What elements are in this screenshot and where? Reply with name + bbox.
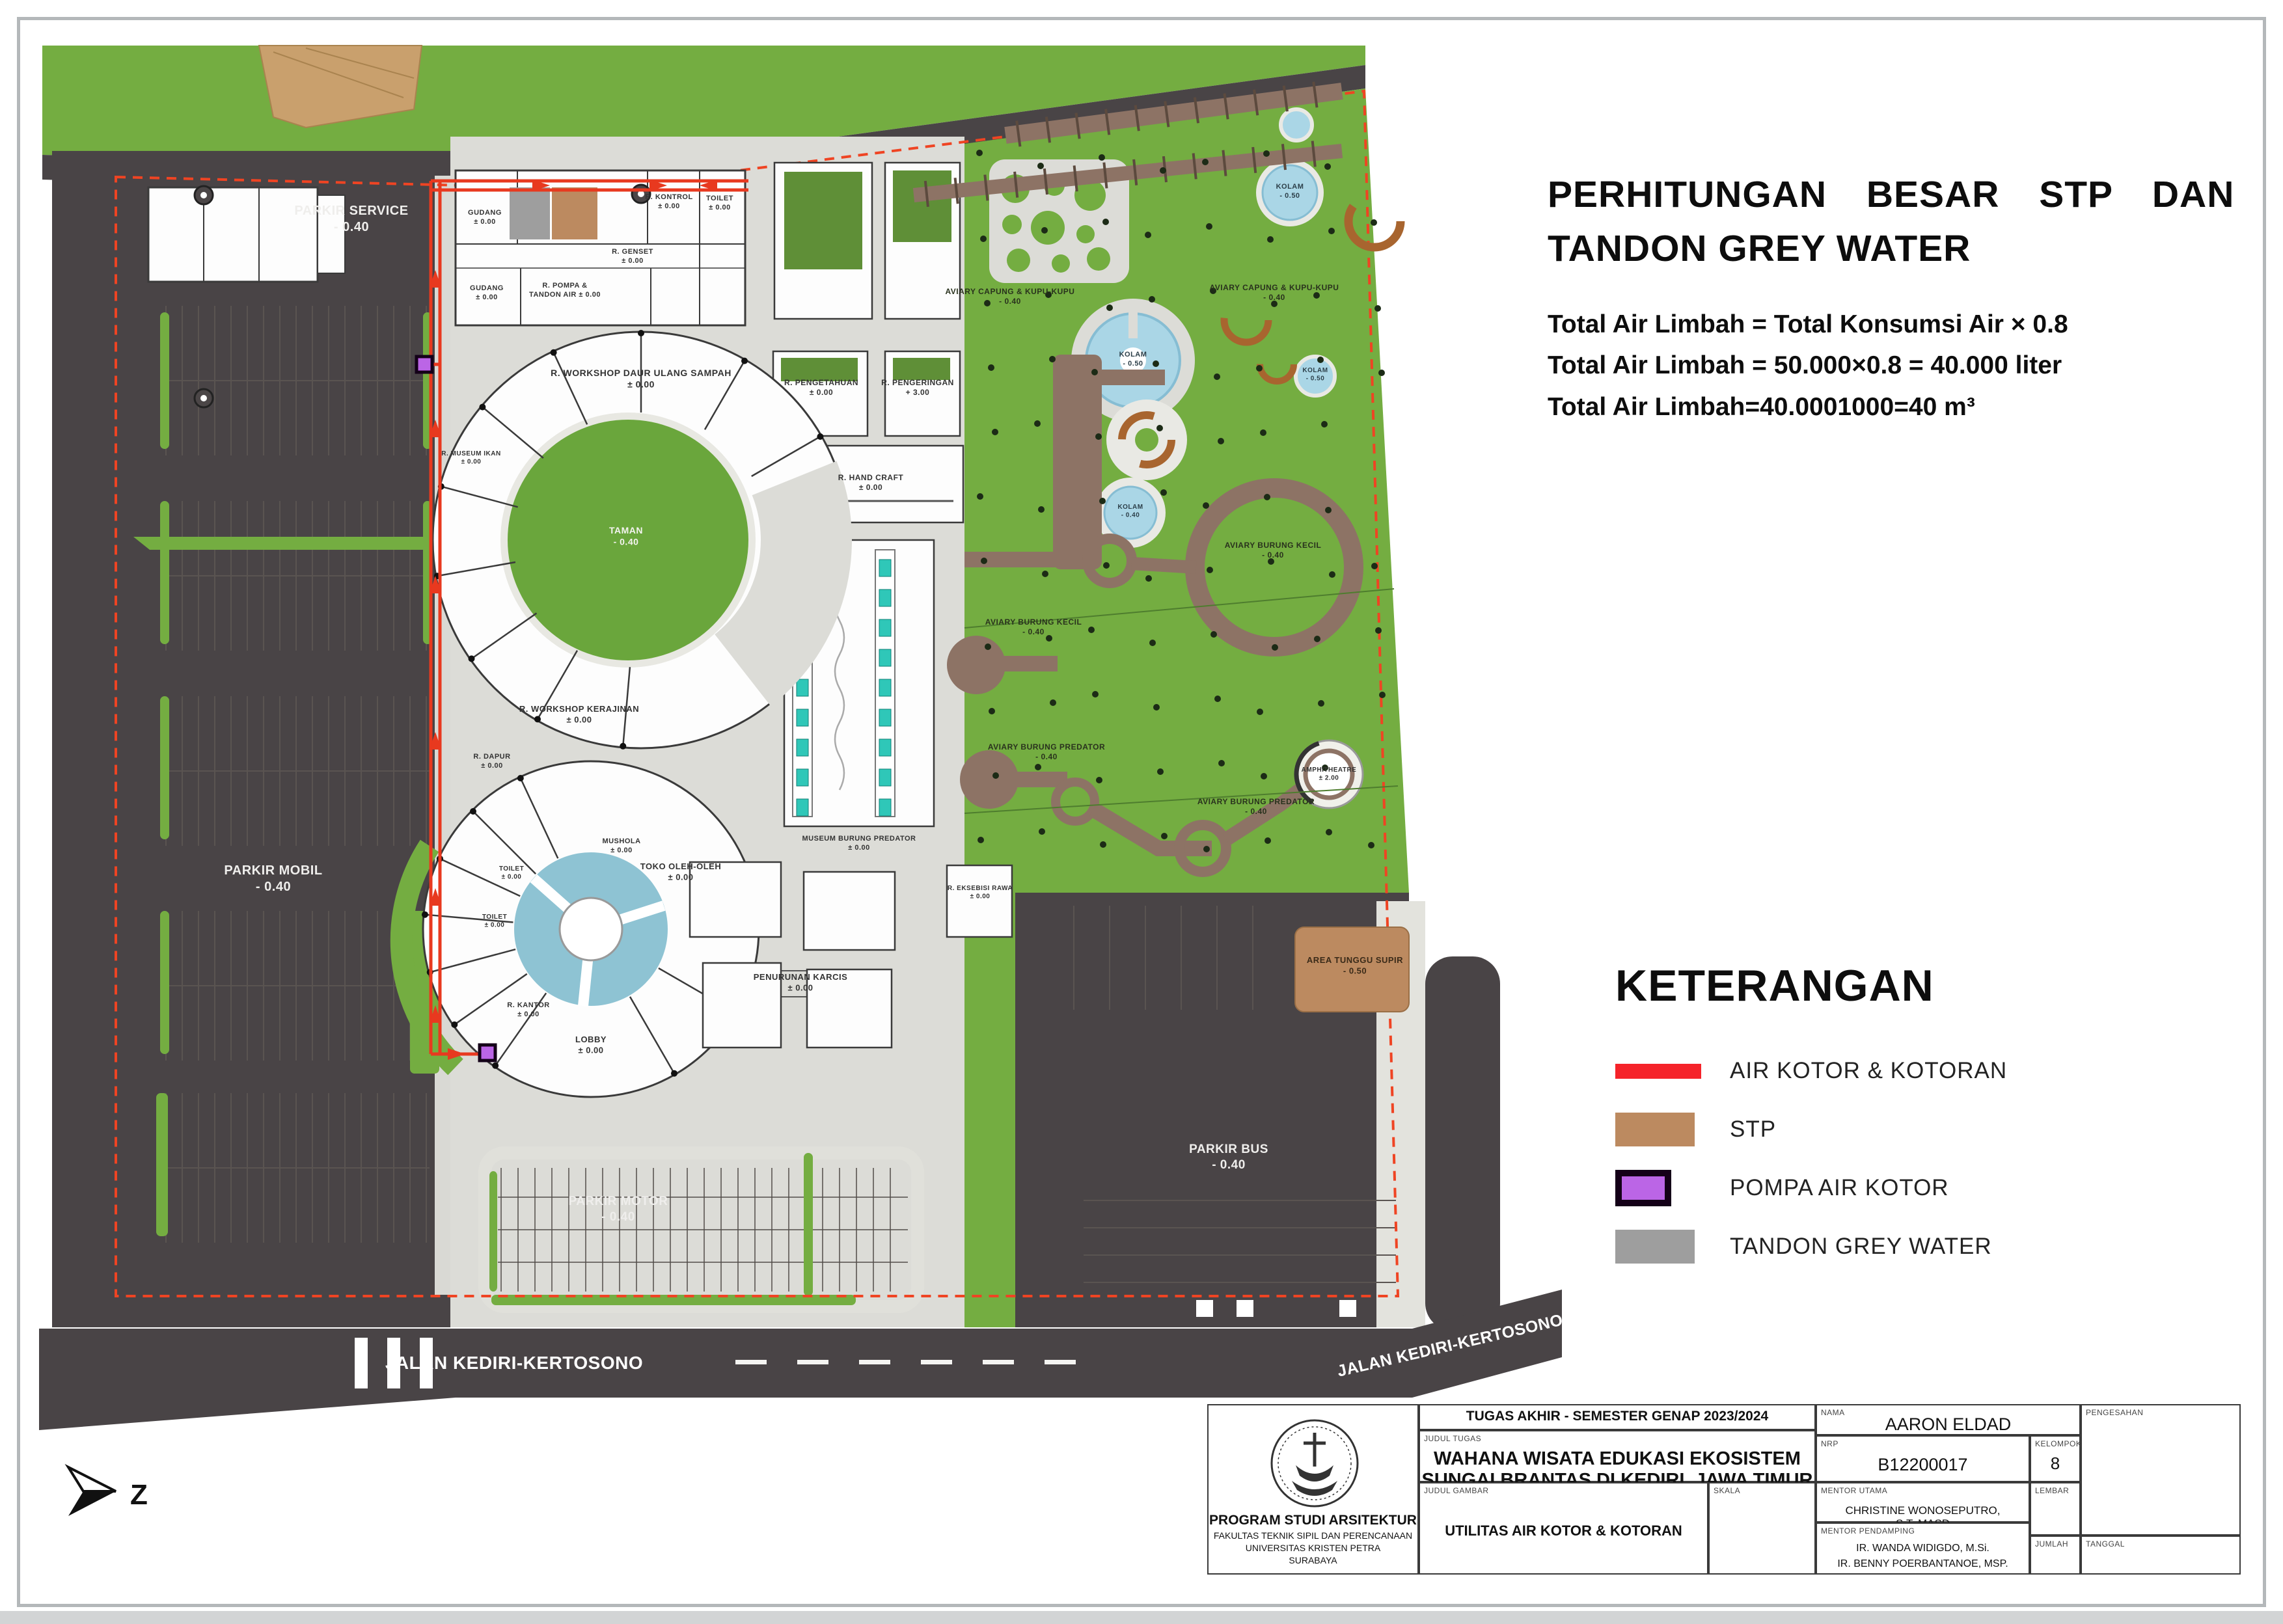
skala-cell: SKALA	[1708, 1482, 1816, 1575]
tandon-grey-water-room	[510, 187, 550, 239]
parking-gravel-edge	[435, 176, 450, 1295]
plan-label: TOILET± 0.00	[499, 865, 524, 881]
calc-line: Total Air Limbah = 50.000×0.8 = 40.000 l…	[1548, 345, 2250, 386]
drawing-title: UTILITAS AIR KOTOR & KOTORAN	[1420, 1522, 1707, 1539]
stp-swatch	[1615, 1113, 1695, 1146]
nrp-cell: NRP B12200017	[1816, 1435, 2030, 1482]
legend-item-label: TANDON GREY WATER	[1730, 1234, 1992, 1260]
plan-label: KOLAM- 0.50	[1302, 367, 1328, 383]
plan-label: KOLAM- 0.50	[1276, 183, 1304, 200]
mentor-utama-cell: MENTOR UTAMA CHRISTINE WONOSEPUTRO, S.T.…	[1816, 1482, 2030, 1522]
pengesahan-label: PENGESAHAN	[2086, 1408, 2143, 1417]
north-east-buildings	[773, 163, 960, 436]
legend-item-label: AIR KOTOR & KOTORAN	[1730, 1058, 2007, 1084]
legend-item-tandon: TANDON GREY WATER	[1615, 1228, 2253, 1265]
tanggal-label: TANGGAL	[2086, 1539, 2125, 1549]
skala-label: SKALA	[1714, 1486, 1740, 1495]
service-parking-building	[148, 187, 345, 282]
legend: KETERANGAN AIR KOTOR & KOTORAN STP POMPA…	[1615, 960, 2253, 1287]
mentor-pendamping-name: IR. WANDA WIDIGDO, M.Si.	[1817, 1541, 2029, 1556]
mentor-pendamping-name: IR. BENNY POERBANTANOE, MSP.	[1817, 1556, 2029, 1572]
parking-mobil-area	[52, 151, 450, 1327]
kelompok-cell: KELOMPOK 8	[2030, 1435, 2081, 1482]
legend-item-air-kotor: AIR KOTOR & KOTORAN	[1615, 1053, 2253, 1089]
judul-gambar-label: JUDUL GAMBAR	[1424, 1486, 1489, 1495]
legend-item-label: STP	[1730, 1116, 1776, 1143]
stp-room	[552, 187, 597, 239]
judul-gambar-cell: JUDUL GAMBAR UTILITAS AIR KOTOR & KOTORA…	[1419, 1482, 1708, 1575]
plan-label: KOLAM- 0.40	[1117, 504, 1143, 519]
institution-line: FAKULTAS TEKNIK SIPIL DAN PERENCANAAN	[1209, 1530, 1417, 1542]
nama-cell: NAMA AARON ELDAD	[1816, 1404, 2081, 1435]
lembar-cell: LEMBAR	[2030, 1482, 2081, 1536]
bottom-road-left-widen	[39, 1398, 456, 1430]
jumlah-cell: JUMLAH	[2030, 1536, 2081, 1575]
tandon-swatch	[1615, 1230, 1695, 1264]
north-arrow: Z	[68, 1467, 148, 1516]
red-line-swatch	[1615, 1064, 1701, 1079]
header-cell: TUGAS AKHIR - SEMESTER GENAP 2023/2024	[1419, 1404, 1816, 1430]
judul-tugas-label: JUDUL TUGAS	[1424, 1434, 1481, 1443]
pengesahan-cell: PENGESAHAN	[2081, 1404, 2241, 1536]
institution-line: SURABAYA	[1209, 1554, 1417, 1567]
title-block: PROGRAM STUDI ARSITEKTUR FAKULTAS TEKNIK…	[1207, 1404, 2241, 1575]
mentor-utama-label: MENTOR UTAMA	[1821, 1486, 1887, 1495]
institution-cell: PROGRAM STUDI ARSITEKTUR FAKULTAS TEKNIK…	[1207, 1404, 1419, 1575]
legend-item-stp: STP	[1615, 1111, 2253, 1148]
mentor-pendamping-label: MENTOR PENDAMPING	[1821, 1526, 1915, 1536]
utility-building	[456, 170, 745, 325]
institution-line: UNIVERSITAS KRISTEN PETRA	[1209, 1542, 1417, 1554]
calc-title-line2: TANDON GREY WATER	[1548, 222, 2250, 276]
student-name: AARON ELDAD	[1817, 1414, 2079, 1435]
judul-tugas-cell: JUDUL TUGAS WAHANA WISATA EDUKASI EKOSIS…	[1419, 1430, 1816, 1482]
plan-label: TAMAN- 0.40	[609, 525, 643, 547]
lembar-label: LEMBAR	[2035, 1486, 2069, 1495]
student-id: B12200017	[1817, 1455, 2029, 1475]
plan-label: LOBBY± 0.00	[575, 1035, 607, 1055]
assignment-header: TUGAS AKHIR - SEMESTER GENAP 2023/2024	[1420, 1409, 1814, 1424]
university-logo	[1266, 1414, 1363, 1512]
institution-line: PROGRAM STUDI ARSITEKTUR	[1209, 1511, 1417, 1530]
plan-label: TOILET± 0.00	[482, 913, 507, 929]
group-number: 8	[2031, 1454, 2079, 1474]
legend-item-label: POMPA AIR KOTOR	[1730, 1175, 1949, 1201]
plan-label: JALAN KEDIRI-KERTOSONO	[385, 1353, 643, 1373]
pompa-swatch	[1615, 1170, 1671, 1206]
legend-title: KETERANGAN	[1615, 960, 2253, 1011]
legend-item-pompa: POMPA AIR KOTOR	[1615, 1170, 2253, 1206]
nrp-label: NRP	[1821, 1439, 1839, 1448]
north-label: Z	[130, 1479, 148, 1511]
project-title-line: WAHANA WISATA EDUKASI EKOSISTEM	[1420, 1448, 1814, 1470]
calc-line: Total Air Limbah=40.0001000=40 m³	[1548, 386, 2250, 427]
kelompok-label: KELOMPOK	[2035, 1439, 2081, 1448]
stp-calculation-block: PERHITUNGAN BESAR STP DAN TANDON GREY WA…	[1548, 168, 2250, 427]
calc-title-line1: PERHITUNGAN BESAR STP DAN	[1548, 168, 2250, 222]
ring-workshop-building	[433, 330, 852, 750]
tanggal-cell: TANGGAL	[2081, 1536, 2241, 1575]
plan-label: TOILET± 0.00	[706, 195, 733, 211]
calc-line: Total Air Limbah = Total Konsumsi Air × …	[1548, 304, 2250, 345]
green-strip-mid	[964, 893, 1015, 1327]
mentor-pendamping-cell: MENTOR PENDAMPING IR. WANDA WIDIGDO, M.S…	[1816, 1522, 2030, 1575]
road-finger-right	[1425, 956, 1500, 1331]
plan-label: KOLAM- 0.50	[1119, 351, 1147, 368]
jumlah-label: JUMLAH	[2035, 1539, 2068, 1549]
